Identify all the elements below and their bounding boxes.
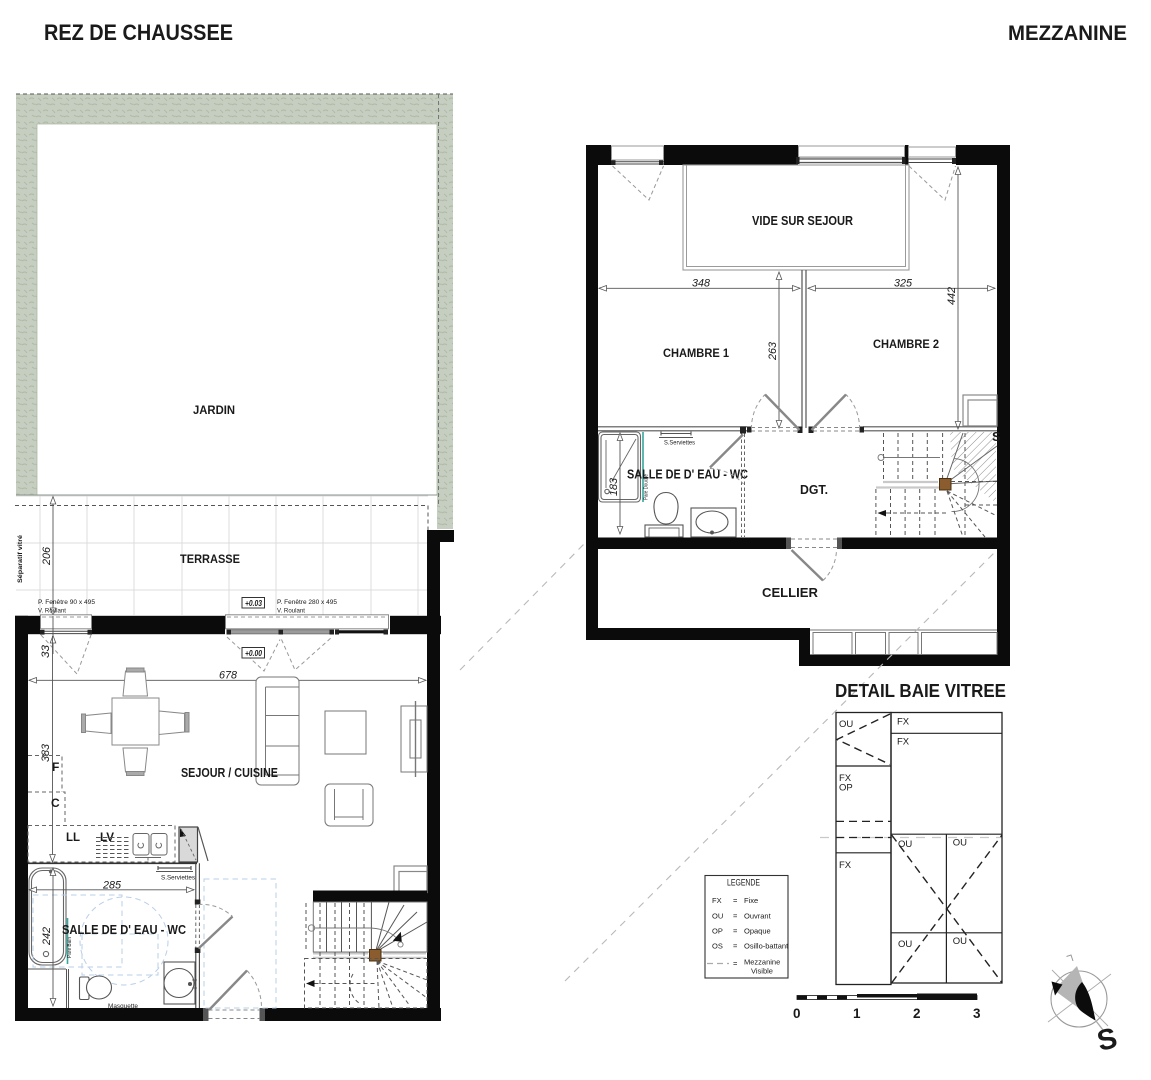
svg-text:242: 242 [41, 927, 53, 946]
svg-text:OP: OP [839, 783, 853, 794]
svg-text:VIDE SUR SEJOUR: VIDE SUR SEJOUR [752, 214, 853, 228]
svg-text:F: F [52, 760, 59, 774]
svg-text:=: = [733, 959, 738, 968]
svg-text:OU: OU [953, 936, 967, 947]
svg-text:678: 678 [219, 670, 238, 682]
svg-text:V. Roulant: V. Roulant [38, 608, 66, 615]
svg-text:325: 325 [894, 278, 913, 290]
svg-text:33: 33 [40, 644, 52, 658]
svg-text:442: 442 [946, 287, 958, 305]
svg-text:DGT.: DGT. [800, 483, 828, 497]
svg-text:OU: OU [898, 839, 912, 850]
svg-text:Opaque: Opaque [744, 927, 771, 936]
svg-text:OP: OP [712, 927, 723, 936]
svg-text:OU: OU [839, 719, 853, 730]
svg-text:=: = [733, 942, 738, 951]
svg-text:S.Serviettes: S.Serviettes [161, 875, 195, 882]
svg-text:2: 2 [913, 1006, 921, 1021]
svg-text:REZ DE CHAUSSEE: REZ DE CHAUSSEE [44, 20, 233, 45]
svg-text:FX: FX [839, 860, 852, 871]
svg-text:Séparatif vitré: Séparatif vitré [17, 535, 24, 583]
svg-text:3: 3 [973, 1006, 981, 1021]
svg-text:183: 183 [608, 477, 620, 496]
svg-text:FX: FX [712, 896, 722, 905]
svg-text:JARDIN: JARDIN [193, 405, 235, 417]
svg-text:MEZZANINE: MEZZANINE [1008, 22, 1127, 45]
svg-text:Ouvrant: Ouvrant [744, 912, 772, 921]
svg-text:1: 1 [853, 1006, 861, 1021]
svg-text:V. Roulant: V. Roulant [277, 608, 305, 615]
svg-text:DETAIL BAIE VITREE: DETAIL BAIE VITREE [835, 681, 1006, 701]
svg-text:285: 285 [102, 880, 122, 892]
svg-text:P. Fenêtre 280 x 495: P. Fenêtre 280 x 495 [277, 599, 338, 606]
svg-text:Masquette: Masquette [108, 1004, 139, 1010]
svg-text:+0.03: +0.03 [245, 599, 262, 608]
svg-text:Visible: Visible [751, 967, 773, 976]
svg-text:OU: OU [898, 939, 912, 950]
svg-text:TERRASSE: TERRASSE [180, 554, 240, 566]
svg-text:OU: OU [712, 912, 723, 921]
svg-text:CELLIER: CELLIER [762, 586, 818, 600]
svg-text:SALLE DE D' EAU - WC: SALLE DE D' EAU - WC [627, 468, 748, 482]
svg-text:263: 263 [767, 341, 779, 361]
svg-text:S.Serviettes: S.Serviettes [664, 440, 695, 447]
svg-text:Osillo-battant: Osillo-battant [744, 942, 789, 951]
svg-text:OU: OU [953, 838, 967, 849]
svg-text:CHAMBRE 1: CHAMBRE 1 [663, 348, 730, 360]
svg-text:0: 0 [793, 1006, 801, 1021]
svg-text:=: = [733, 927, 738, 936]
svg-text:=: = [733, 912, 738, 921]
svg-text:FX: FX [897, 717, 910, 728]
svg-text:SALLE DE D' EAU - WC: SALLE DE D' EAU - WC [62, 922, 187, 937]
svg-text:SEJOUR / CUISINE: SEJOUR / CUISINE [181, 765, 278, 780]
svg-text:S: S [992, 429, 1001, 444]
svg-text:+0.00: +0.00 [245, 649, 262, 658]
svg-text:FX: FX [897, 737, 910, 748]
svg-text:Mezzanine: Mezzanine [744, 958, 780, 967]
svg-text:C: C [51, 796, 60, 810]
svg-text:206: 206 [41, 546, 53, 566]
svg-text:383: 383 [40, 743, 52, 762]
svg-text:=: = [733, 896, 738, 905]
svg-text:348: 348 [692, 278, 711, 290]
svg-text:CHAMBRE 2: CHAMBRE 2 [873, 339, 939, 351]
svg-text:LEGENDE: LEGENDE [727, 878, 760, 888]
svg-text:Fixe: Fixe [744, 896, 758, 905]
svg-text:P. Fenêtre 90 x 495: P. Fenêtre 90 x 495 [38, 599, 96, 606]
svg-text:OS: OS [712, 942, 723, 951]
svg-text:LL: LL [66, 832, 80, 844]
svg-text:Pare Bain: Pare Bain [67, 937, 73, 958]
